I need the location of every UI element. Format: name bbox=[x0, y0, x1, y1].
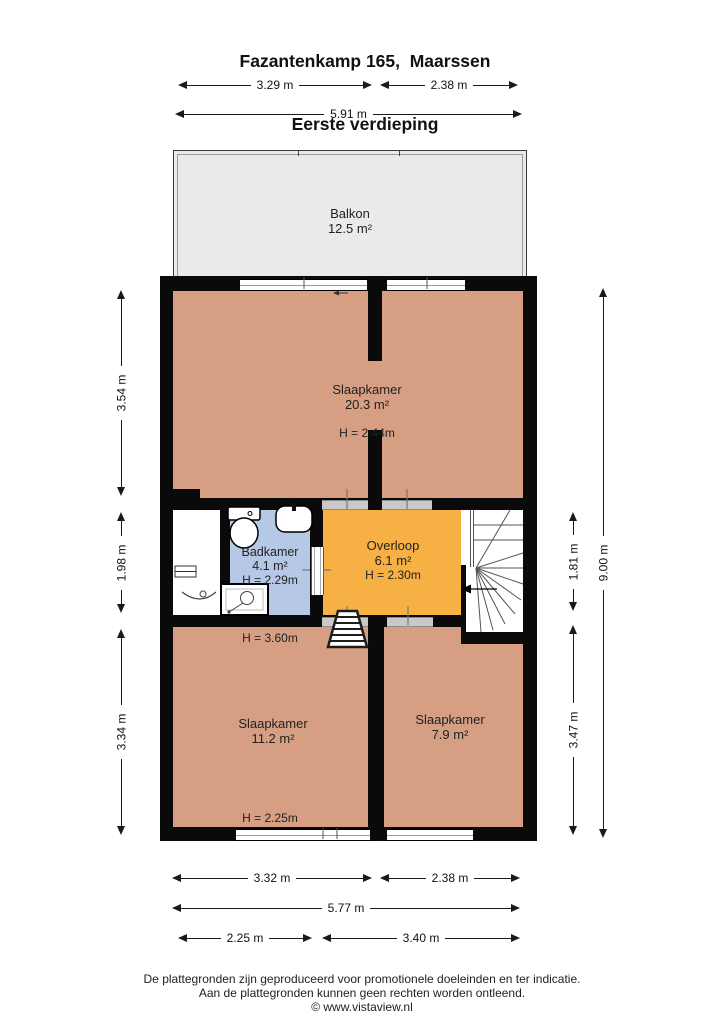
arrow-right-icon bbox=[363, 81, 372, 89]
dimension-left-bottom: 3.34 m bbox=[114, 629, 128, 835]
arrow-down-icon bbox=[569, 602, 577, 611]
dimension-left-top: 3.54 m bbox=[114, 290, 128, 496]
wall-left bbox=[160, 276, 173, 841]
arrow-left-icon bbox=[178, 81, 187, 89]
arrow-right-icon bbox=[513, 110, 522, 118]
arrow-up-icon bbox=[117, 290, 125, 299]
wall-notch bbox=[173, 489, 200, 510]
dimension-bottom-right: 2.38 m bbox=[380, 871, 520, 885]
arrow-left-icon bbox=[380, 81, 389, 89]
arrow-left-icon bbox=[175, 110, 184, 118]
height-label-bedroom-left: H = 2.25m bbox=[195, 811, 345, 825]
arrow-left-icon bbox=[322, 934, 331, 942]
arrow-up-icon bbox=[117, 512, 125, 521]
arrow-left-icon bbox=[172, 874, 181, 882]
dimension-top-total: 5.91 m bbox=[175, 107, 522, 121]
window-bottom-right bbox=[387, 829, 473, 841]
dimension-top-left: 3.29 m bbox=[178, 78, 372, 92]
arrow-up-icon bbox=[569, 512, 577, 521]
bedroom-left-label: Slaapkamer 11.2 m² bbox=[198, 716, 348, 746]
arrow-down-icon bbox=[117, 487, 125, 496]
dimension-bottom-total: 5.77 m bbox=[172, 901, 520, 915]
arrow-right-icon bbox=[303, 934, 312, 942]
window-top-left bbox=[240, 279, 367, 291]
arrow-right-icon bbox=[511, 934, 520, 942]
arrow-down-icon bbox=[117, 604, 125, 613]
disclaimer-line1: De plattegronden zijn geproduceerd voor … bbox=[0, 972, 724, 986]
floor-plan-page: Fazantenkamp 165, Maarssen Eerste verdie… bbox=[0, 0, 724, 1024]
arrow-right-icon bbox=[363, 874, 372, 882]
disclaimer: De plattegronden zijn geproduceerd voor … bbox=[0, 972, 724, 1014]
wall-right bbox=[523, 276, 537, 841]
arrow-down-icon bbox=[117, 826, 125, 835]
door-opening-bedroom-top-right bbox=[382, 500, 432, 510]
address-title: Fazantenkamp 165, Maarssen bbox=[165, 51, 565, 72]
railing-tick bbox=[399, 150, 400, 156]
landing-label: Overloop 6.1 m² H = 2.30m bbox=[318, 538, 468, 582]
dimension-top-right: 2.38 m bbox=[380, 78, 518, 92]
arrow-left-icon bbox=[172, 904, 181, 912]
dimension-right-total: 9.00 m bbox=[596, 288, 610, 838]
railing-tick bbox=[298, 150, 299, 156]
height-label-niche: H = 3.60m bbox=[195, 631, 345, 645]
arrow-left-icon bbox=[178, 934, 187, 942]
door-opening-bedroom-top-left bbox=[322, 500, 368, 510]
copyright: © www.vistaview.nl bbox=[0, 1000, 724, 1014]
arrow-left-icon bbox=[380, 874, 389, 882]
disclaimer-line2: Aan de plattegronden kunnen geen rechten… bbox=[0, 986, 724, 1000]
dimension-left-middle: 1.98 m bbox=[114, 512, 128, 613]
arrow-right-icon bbox=[511, 874, 520, 882]
stairwell-floor bbox=[461, 510, 523, 632]
door-opening-bedroom-right bbox=[387, 617, 433, 627]
bedroom-top-label: Slaapkamer 20.3 m² H = 2.44m bbox=[292, 382, 442, 440]
dimension-bottom-room-right: 3.40 m bbox=[322, 931, 520, 945]
door-opening-bedroom-left bbox=[322, 617, 368, 627]
arrow-down-icon bbox=[569, 826, 577, 835]
dimension-right-landing: 1.81 m bbox=[566, 512, 580, 611]
balcony-label: Balkon 12.5 m² bbox=[275, 206, 425, 236]
dimension-right-bottom: 3.47 m bbox=[566, 625, 580, 835]
dimension-bottom-room-left: 2.25 m bbox=[178, 931, 312, 945]
dimension-bottom-left: 3.32 m bbox=[172, 871, 372, 885]
wall-stub-upper bbox=[368, 291, 382, 361]
bedroom-right-label: Slaapkamer 7.9 m² bbox=[375, 712, 525, 742]
window-top-right bbox=[387, 279, 465, 291]
arrow-right-icon bbox=[509, 81, 518, 89]
arrow-up-icon bbox=[599, 288, 607, 297]
arrow-up-icon bbox=[117, 629, 125, 638]
arrow-up-icon bbox=[569, 625, 577, 634]
wall-stairwell-bottom bbox=[461, 632, 523, 644]
arrow-right-icon bbox=[511, 904, 520, 912]
window-bottom-left bbox=[236, 829, 370, 841]
arrow-down-icon bbox=[599, 829, 607, 838]
